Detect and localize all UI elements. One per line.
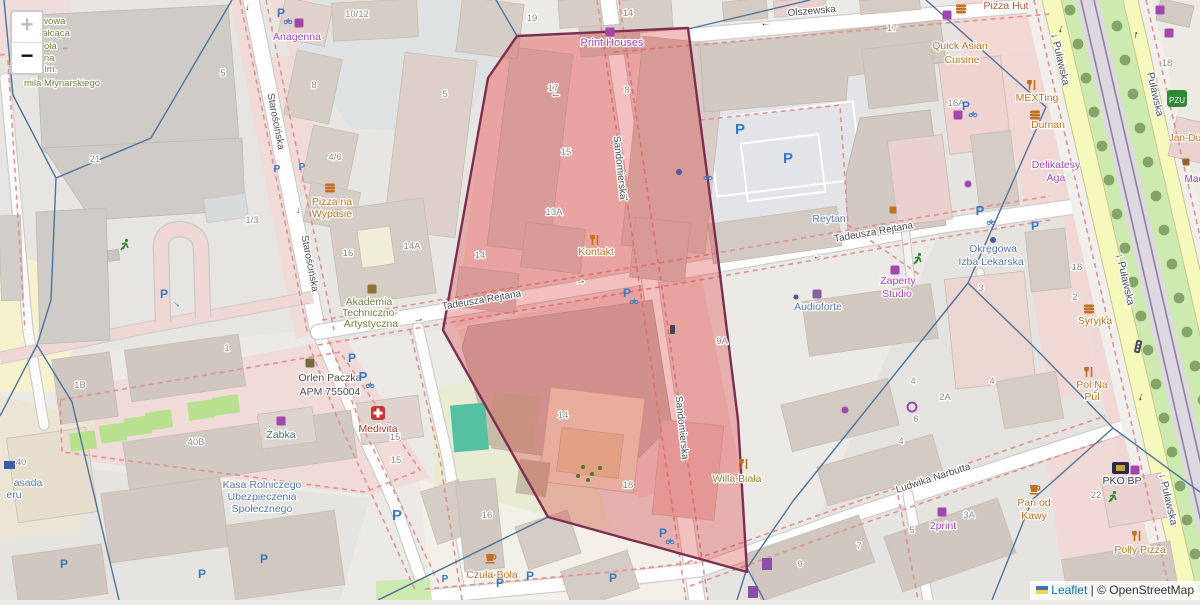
svg-text:Orlen Paczka: Orlen Paczka	[298, 372, 361, 384]
svg-text:40B: 40B	[188, 437, 205, 448]
svg-text:Sandomierska: Sandomierska	[673, 395, 691, 460]
svg-text:2print: 2print	[930, 520, 956, 532]
svg-text:Ludwika Narbutta: Ludwika Narbutta	[895, 461, 973, 496]
svg-text:1: 1	[224, 343, 229, 354]
svg-text:Polly Pizza: Polly Pizza	[1114, 544, 1166, 556]
svg-text:Reytan: Reytan	[812, 213, 845, 225]
svg-text:18: 18	[1072, 262, 1083, 273]
svg-text:P: P	[348, 351, 356, 365]
svg-text:P: P	[359, 369, 368, 384]
svg-text:4: 4	[898, 436, 903, 447]
svg-text:PKO BP: PKO BP	[1102, 475, 1141, 487]
svg-text:↓: ↓	[623, 191, 630, 204]
svg-text:8: 8	[311, 80, 316, 91]
svg-text:Puławska: Puławska	[1144, 71, 1166, 118]
svg-text:1/3: 1/3	[245, 215, 258, 226]
svg-text:PZU: PZU	[1169, 96, 1185, 105]
svg-text:MEXTing: MEXTing	[1016, 92, 1059, 104]
svg-text:Studio: Studio	[882, 288, 912, 300]
svg-text:14: 14	[623, 8, 634, 19]
svg-text:Print Houses: Print Houses	[581, 37, 644, 49]
svg-text:9: 9	[797, 559, 802, 570]
svg-text:16: 16	[343, 248, 354, 259]
svg-text:P: P	[1031, 219, 1039, 233]
svg-text:Kasa Rolniczego: Kasa Rolniczego	[223, 479, 302, 491]
svg-text:P: P	[735, 121, 745, 138]
svg-text:P: P	[277, 6, 285, 20]
svg-text:22: 22	[1091, 490, 1102, 501]
svg-text:Medivita: Medivita	[358, 423, 397, 435]
svg-text:14: 14	[475, 250, 486, 261]
svg-text:18: 18	[623, 480, 634, 491]
svg-text:Pul: Pul	[1084, 391, 1099, 403]
svg-text:15: 15	[561, 147, 572, 158]
svg-text:17: 17	[887, 23, 898, 34]
svg-text:3A: 3A	[963, 510, 975, 521]
svg-text:P: P	[198, 567, 206, 581]
svg-text:14A: 14A	[404, 241, 422, 252]
svg-text:16: 16	[482, 510, 493, 521]
svg-text:4: 4	[989, 376, 994, 387]
svg-text:Syryjka: Syryjka	[1078, 315, 1113, 327]
svg-text:5: 5	[442, 89, 447, 100]
svg-text:P: P	[623, 286, 631, 300]
svg-text:Wypasie: Wypasie	[312, 208, 352, 220]
svg-text:Tadeusza Rejtana: Tadeusza Rejtana	[441, 288, 522, 312]
svg-text:Mac: Mac	[1185, 174, 1200, 185]
svg-text:P: P	[160, 287, 168, 301]
svg-text:Pizza na: Pizza na	[312, 196, 352, 208]
svg-text:10/12: 10/12	[345, 9, 369, 20]
svg-text:P: P	[609, 571, 617, 585]
svg-text:Żabka: Żabka	[266, 428, 295, 441]
svg-text:Quick Asian: Quick Asian	[932, 40, 988, 52]
svg-text:Ubezpieczenia: Ubezpieczenia	[228, 491, 297, 503]
svg-text:15: 15	[391, 455, 402, 466]
svg-text:18: 18	[1162, 58, 1173, 69]
svg-text:Willa Biała: Willa Biała	[712, 473, 761, 485]
svg-text:Okręgowa: Okręgowa	[969, 243, 1017, 255]
svg-text:↓ Puławska: ↓ Puławska	[1048, 32, 1072, 87]
svg-text:8: 8	[624, 85, 629, 96]
svg-text:P: P	[392, 507, 402, 524]
svg-text:P: P	[962, 99, 970, 113]
svg-text:Kontakt: Kontakt	[578, 246, 614, 258]
svg-text:Aga: Aga	[1047, 172, 1066, 184]
svg-text:7: 7	[856, 541, 861, 552]
svg-text:Społecznego: Społecznego	[232, 503, 293, 515]
svg-text:Artystyczna: Artystyczna	[344, 318, 398, 330]
svg-text:Delikatesy: Delikatesy	[1032, 159, 1081, 171]
svg-text:5: 5	[909, 525, 914, 536]
svg-text:Starościńska: Starościńska	[265, 92, 287, 151]
svg-text:P: P	[274, 164, 281, 175]
svg-text:Cuisine: Cuisine	[944, 54, 979, 66]
svg-text:40: 40	[16, 457, 27, 468]
svg-text:P: P	[659, 526, 667, 540]
svg-text:17: 17	[548, 83, 559, 94]
svg-text:19: 19	[527, 13, 538, 24]
svg-text:→: →	[412, 312, 425, 326]
svg-text:P: P	[299, 162, 306, 173]
svg-text:Olszewska: Olszewska	[787, 4, 837, 19]
svg-text:←: ←	[760, 17, 772, 30]
svg-text:5: 5	[220, 68, 225, 79]
svg-text:1B: 1B	[74, 380, 86, 391]
svg-text:P: P	[442, 574, 449, 585]
svg-text:Zaperty: Zaperty	[880, 275, 916, 287]
svg-text:9A: 9A	[716, 336, 728, 347]
svg-text:Pizza Hut: Pizza Hut	[984, 0, 1029, 12]
svg-text:Jan-Du: Jan-Du	[1169, 133, 1200, 144]
svg-text:6: 6	[913, 414, 918, 425]
svg-text:im.: im.	[45, 64, 58, 75]
svg-text:Kawy: Kawy	[1021, 510, 1047, 522]
svg-text:P: P	[526, 569, 534, 583]
svg-text:4: 4	[910, 376, 915, 387]
svg-text:Audioforte: Audioforte	[794, 301, 842, 313]
svg-text:Pan od: Pan od	[1017, 497, 1050, 509]
svg-text:3: 3	[978, 283, 983, 294]
svg-text:↓: ↓	[244, 2, 251, 14]
svg-text:P: P	[496, 576, 504, 590]
svg-text:P: P	[260, 552, 268, 566]
svg-text:Anagenna: Anagenna	[273, 31, 321, 43]
svg-text:APM 755004: APM 755004	[300, 386, 361, 398]
svg-text:2: 2	[1072, 292, 1077, 303]
svg-text:↓: ↓	[295, 205, 302, 217]
svg-text:Starościńska: Starościńska	[299, 234, 321, 293]
svg-text:13A: 13A	[546, 207, 564, 218]
svg-text:14: 14	[558, 410, 569, 421]
svg-text:Izba Lekarska: Izba Lekarska	[958, 256, 1024, 268]
svg-text:21: 21	[90, 154, 101, 165]
svg-text:Duman: Duman	[1031, 119, 1065, 131]
svg-text:4/6: 4/6	[328, 152, 341, 163]
svg-text:↓ Puławska: ↓ Puławska	[1113, 252, 1137, 307]
svg-text:2A: 2A	[939, 392, 951, 403]
svg-text:eru: eru	[6, 489, 21, 501]
svg-text:mila Młynarskiego: mila Młynarskiego	[24, 78, 100, 89]
svg-text:P: P	[60, 557, 68, 571]
svg-text:P: P	[783, 150, 793, 167]
svg-text:Pol Na: Pol Na	[1076, 379, 1108, 391]
svg-text:→: →	[574, 274, 587, 288]
svg-text:P: P	[976, 203, 985, 218]
svg-text:↓ Puławska: ↓ Puławska	[1156, 472, 1180, 527]
svg-text:←: ←	[811, 249, 824, 263]
svg-text:asada: asada	[14, 477, 43, 489]
svg-text:Czuła-Bola: Czuła-Bola	[466, 569, 518, 581]
svg-text:→: →	[169, 295, 185, 311]
